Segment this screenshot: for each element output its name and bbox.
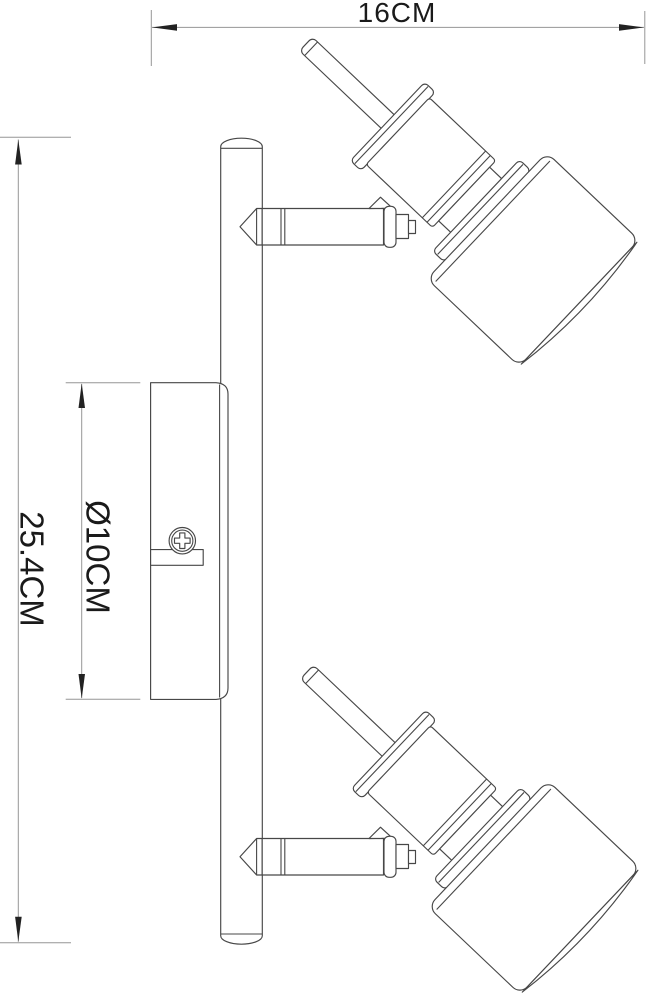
arrowhead-down-icon [79, 674, 86, 699]
screw [169, 528, 195, 554]
arrowhead-left-icon [152, 24, 177, 31]
arrowhead-down-icon [15, 917, 22, 942]
swivel-arm-lower [240, 827, 416, 877]
spotlight-head-upper [246, 0, 644, 371]
dimension-diameter-label: Ø10CM [79, 492, 117, 623]
spotlight-head-lower [247, 609, 645, 999]
arrowhead-up-icon [79, 383, 86, 408]
arrowhead-up-icon [15, 140, 22, 165]
swivel-arm-upper [240, 197, 416, 247]
technical-drawing-page: 16CM 25.4CM Ø10CM [0, 0, 649, 1000]
arrowhead-right-icon [619, 24, 644, 31]
dimension-width-label: 16CM [330, 0, 464, 29]
dimension-height-label: 25.4CM [13, 504, 51, 635]
